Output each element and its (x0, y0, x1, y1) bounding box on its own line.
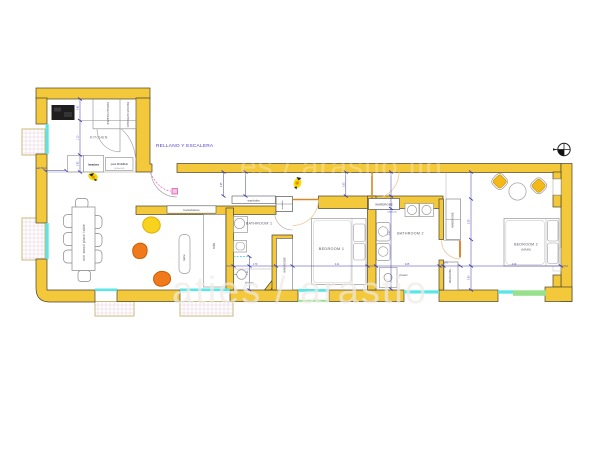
svg-text:(0.60x0.60): (0.60x0.60) (114, 168, 124, 170)
svg-text:0.60x2.20: 0.60x2.20 (387, 212, 397, 214)
svg-text:bookshelves: bookshelves (183, 208, 200, 212)
svg-text:BATHROOM 2: BATHROOM 2 (397, 232, 424, 236)
svg-text:0.80: 0.80 (469, 275, 471, 280)
svg-text:wardrobe: wardrobe (281, 200, 284, 210)
svg-text:wall 50cm: wall 50cm (36, 167, 47, 170)
svg-text:aties / arastio: aties / arastio (172, 270, 428, 312)
svg-text:(MAIN): (MAIN) (521, 248, 531, 252)
svg-text:table: table (182, 254, 186, 261)
svg-text:one wood place table: one wood place table (82, 224, 86, 261)
svg-text:WARDROBE: WARDROBE (451, 212, 455, 227)
svg-text:BEDROOM 1: BEDROOM 1 (319, 247, 345, 251)
svg-text:0.70: 0.70 (443, 263, 448, 265)
svg-text:BEDROOM 2: BEDROOM 2 (514, 243, 538, 247)
svg-text:BATHROOM 1: BATHROOM 1 (246, 222, 273, 226)
svg-text:KITCHEN: KITCHEN (90, 136, 108, 140)
svg-text:lavadora: lavadora (88, 162, 99, 166)
svg-text:0.95: 0.95 (221, 182, 223, 187)
svg-text:2.05: 2.05 (469, 219, 471, 224)
svg-text:sofa: sofa (212, 243, 216, 249)
svg-text:RELLANO Y ESCALERA: RELLANO Y ESCALERA (156, 143, 214, 149)
svg-text:2.20: 2.20 (389, 230, 391, 235)
svg-text:4.41: 4.41 (335, 264, 340, 266)
svg-text:BROOM CUPBOARD: BROOM CUPBOARD (126, 102, 130, 127)
svg-text:1.70: 1.70 (253, 264, 258, 266)
svg-text:2.05: 2.05 (405, 264, 410, 266)
svg-text:es / arastio fin: es / arastio fin (240, 150, 443, 183)
svg-text:4.40: 4.40 (512, 264, 517, 266)
svg-text:wardrobe: wardrobe (248, 198, 260, 202)
svg-text:WARDROBE: WARDROBE (449, 269, 452, 283)
svg-text:WARDROBE: WARDROBE (375, 203, 393, 207)
svg-text:0.60: 0.60 (78, 105, 80, 110)
svg-text:FRIDGE FREEZER: FRIDGE FREEZER (106, 102, 110, 125)
svg-text:1.10: 1.10 (78, 135, 80, 140)
svg-text:para MUEBLE: para MUEBLE (111, 162, 128, 166)
svg-text:0.55: 0.55 (78, 161, 80, 166)
